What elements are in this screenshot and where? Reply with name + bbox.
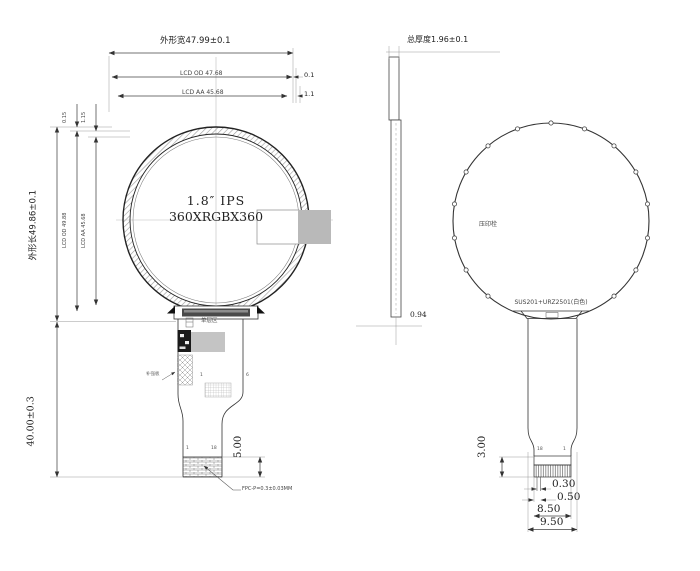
ic-pad (180, 347, 186, 350)
component-gray-rect (191, 332, 225, 352)
dim-lcd-od-width: LCD OD 47.68 (180, 71, 223, 77)
dim-back-tail: 3.00 (478, 436, 488, 458)
back-connector-body (534, 456, 571, 465)
stiffener-leader (162, 372, 175, 380)
connector-stub (537, 477, 541, 491)
ic-pad (180, 334, 184, 337)
dim-lcd-od-height: LCD OD 49.88 (63, 213, 68, 248)
bonding-bar-highlight (184, 310, 248, 313)
ic-pad (185, 341, 189, 344)
drawing-canvas (0, 0, 700, 571)
dim-850: 8.50 (537, 504, 560, 515)
back-view (452, 121, 649, 532)
fpc-pitch-note: FPC-P=0.3±0.03MM (242, 487, 292, 492)
dim-outer-height: 外形长49.86±0.1 (30, 190, 39, 260)
side-bar-top (389, 57, 399, 120)
resolution-label: 360XRGBX360 (169, 211, 263, 224)
stiffener-label: 补强板 (146, 373, 160, 378)
front-view (50, 48, 333, 490)
tab-gray-rect (298, 210, 331, 244)
back-fpc-tail-outline (528, 319, 577, 457)
back-pin-first: 1 (563, 448, 566, 453)
back-connector-pins (534, 465, 571, 477)
lcd-module-drawing: 外形宽47.99±0.1 LCD OD 47.68 LCD AA 45.68 0… (0, 0, 700, 571)
dim-050: 0.50 (557, 492, 580, 503)
mesh-area (205, 383, 231, 397)
mesh-pin-last: 6 (246, 374, 249, 379)
dim-connector-height: 5.00 (234, 436, 244, 458)
front-dimensions (50, 48, 303, 490)
dim-od-gap-top: 0.15 (63, 112, 68, 123)
stiffener-area (178, 355, 193, 385)
dim-lcd-aa-height: LCD AA 45.68 (82, 213, 87, 248)
dim-950: 9.50 (540, 517, 563, 528)
back-pin-last: 18 (537, 448, 543, 453)
dim-fpc-length: 40.00±0.3 (27, 396, 37, 446)
dim-od-gap-right: 0.1 (304, 72, 314, 79)
bonding-wedge-left (167, 306, 175, 314)
mesh-pin-first: 1 (200, 374, 203, 379)
dim-panel-thickness: 0.94 (410, 311, 427, 319)
dim-lcd-aa-width: LCD AA 45.68 (182, 90, 224, 96)
dim-030: 0.30 (552, 479, 575, 490)
material-label: SUS201+URZ2501(白色) (514, 300, 587, 306)
display-size-label: 1.8″ IPS (187, 195, 245, 208)
connector-pin-first: 1 (186, 447, 189, 452)
tab-outline-rect (257, 210, 299, 244)
dim-outer-width: 外形宽47.99±0.1 (160, 37, 230, 46)
dim-total-thickness: 总厚度1.96±0.1 (407, 36, 468, 44)
connector-pin-last: 18 (211, 447, 217, 452)
stamp-label: 压印栓 (479, 222, 497, 228)
dim-aa-gap-right: 1.1 (304, 91, 314, 98)
fpc-connector (183, 457, 222, 477)
single-layer-label: 单层区 (201, 319, 218, 325)
dim-aa-gap-top: 1.15 (82, 112, 87, 123)
